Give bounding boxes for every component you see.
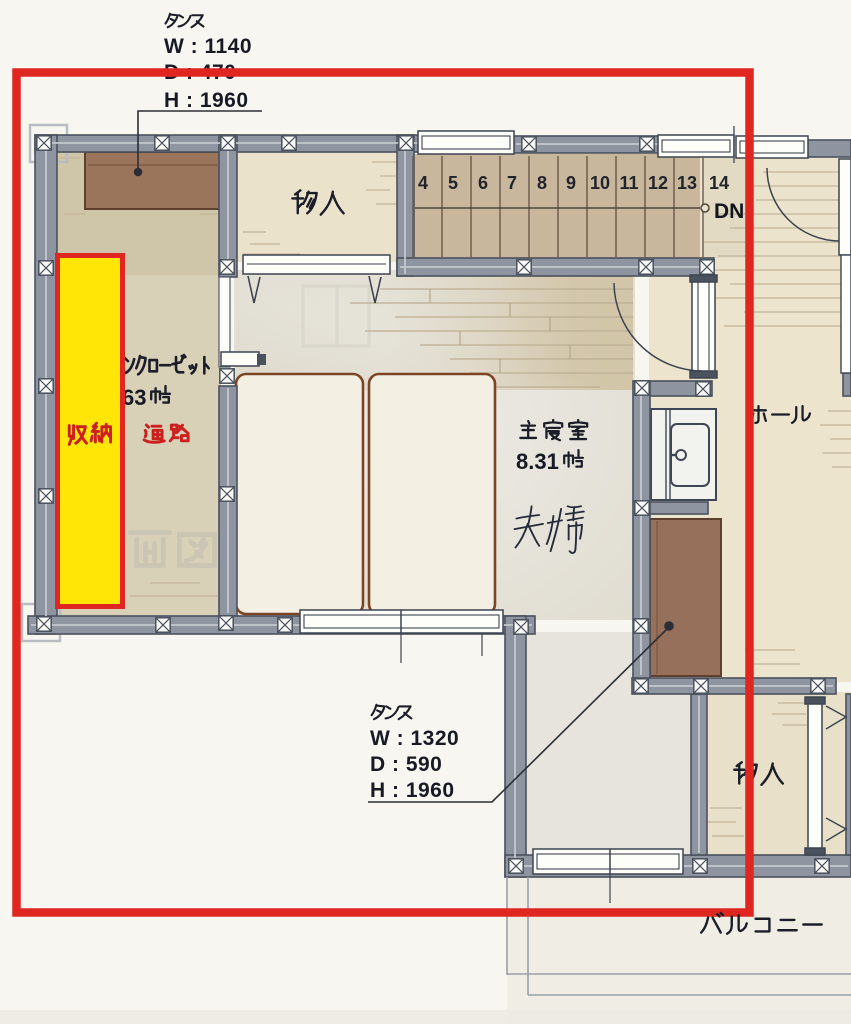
svg-text:8: 8 [537, 173, 547, 193]
svg-text:63: 63 [122, 385, 146, 410]
svg-text:W : 1320: W : 1320 [370, 727, 459, 750]
svg-text:5: 5 [448, 173, 458, 193]
svg-text:D : 590: D : 590 [370, 753, 442, 776]
svg-text:DN: DN [714, 200, 744, 223]
svg-text:10: 10 [590, 173, 610, 193]
svg-text:14: 14 [709, 173, 729, 193]
svg-text:7: 7 [507, 173, 517, 193]
svg-text:12: 12 [648, 173, 668, 193]
svg-text:W : 1140: W : 1140 [164, 35, 252, 58]
svg-text:6: 6 [478, 173, 488, 193]
svg-text:9: 9 [566, 173, 576, 193]
svg-text:4: 4 [418, 173, 428, 193]
svg-text:13: 13 [677, 173, 697, 193]
svg-text:11: 11 [619, 173, 638, 193]
svg-text:8.31: 8.31 [516, 449, 559, 474]
svg-text:H : 1960: H : 1960 [164, 89, 249, 112]
svg-text:H : 1960: H : 1960 [370, 779, 455, 802]
